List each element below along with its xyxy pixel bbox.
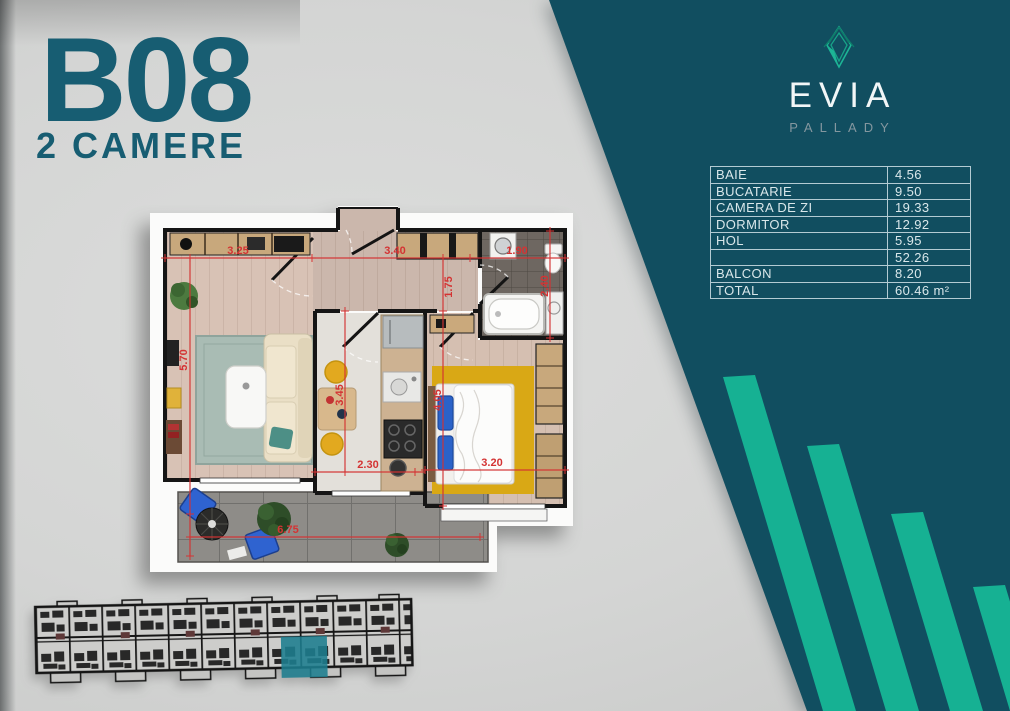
pot [390,460,406,476]
coffee-table [226,366,266,428]
sofa [264,334,312,462]
dim-living-width: 3.25 [227,245,248,257]
bench-item [436,319,446,328]
site-plan-highlight-unit [281,636,328,678]
dim-living-height: 5.70 [178,349,190,370]
fridge [383,316,423,348]
site-plan [27,593,429,697]
pillow-2 [438,436,453,470]
dim-bedroom-height: 4.05 [432,389,444,410]
plant [170,282,198,310]
vanity-sink [546,292,563,334]
dim-kitchen-height: 3.45 [334,384,346,405]
sink [383,372,421,402]
bathtub [484,294,544,334]
dim-bath-height: 2.40 [539,275,551,296]
bedroom-sill [441,509,547,521]
wardrobe [536,344,563,424]
balcony-table [196,508,228,540]
dim-bedroom-width: 3.20 [481,457,502,469]
dresser [536,434,563,498]
dim-balcony-width: 6.75 [277,524,298,536]
stove [384,420,422,458]
chair-1 [325,361,347,383]
book-shelf [166,420,182,454]
poster: B08 2 CAMERE EVIA PALLADY BAIE 4.56 BUCA… [0,0,1010,711]
dim-hall-height: 1.75 [443,276,455,297]
chair-2 [321,433,343,455]
dim-bath-width: 1.90 [506,245,527,257]
dim-hall-width: 3.40 [384,245,405,257]
dim-kitchen-width: 2.30 [357,459,378,471]
side-stool [167,388,181,408]
building-outline [35,594,413,683]
hall-wardrobe [397,233,478,259]
sofa-pillow [268,426,293,450]
balcony [178,487,488,562]
